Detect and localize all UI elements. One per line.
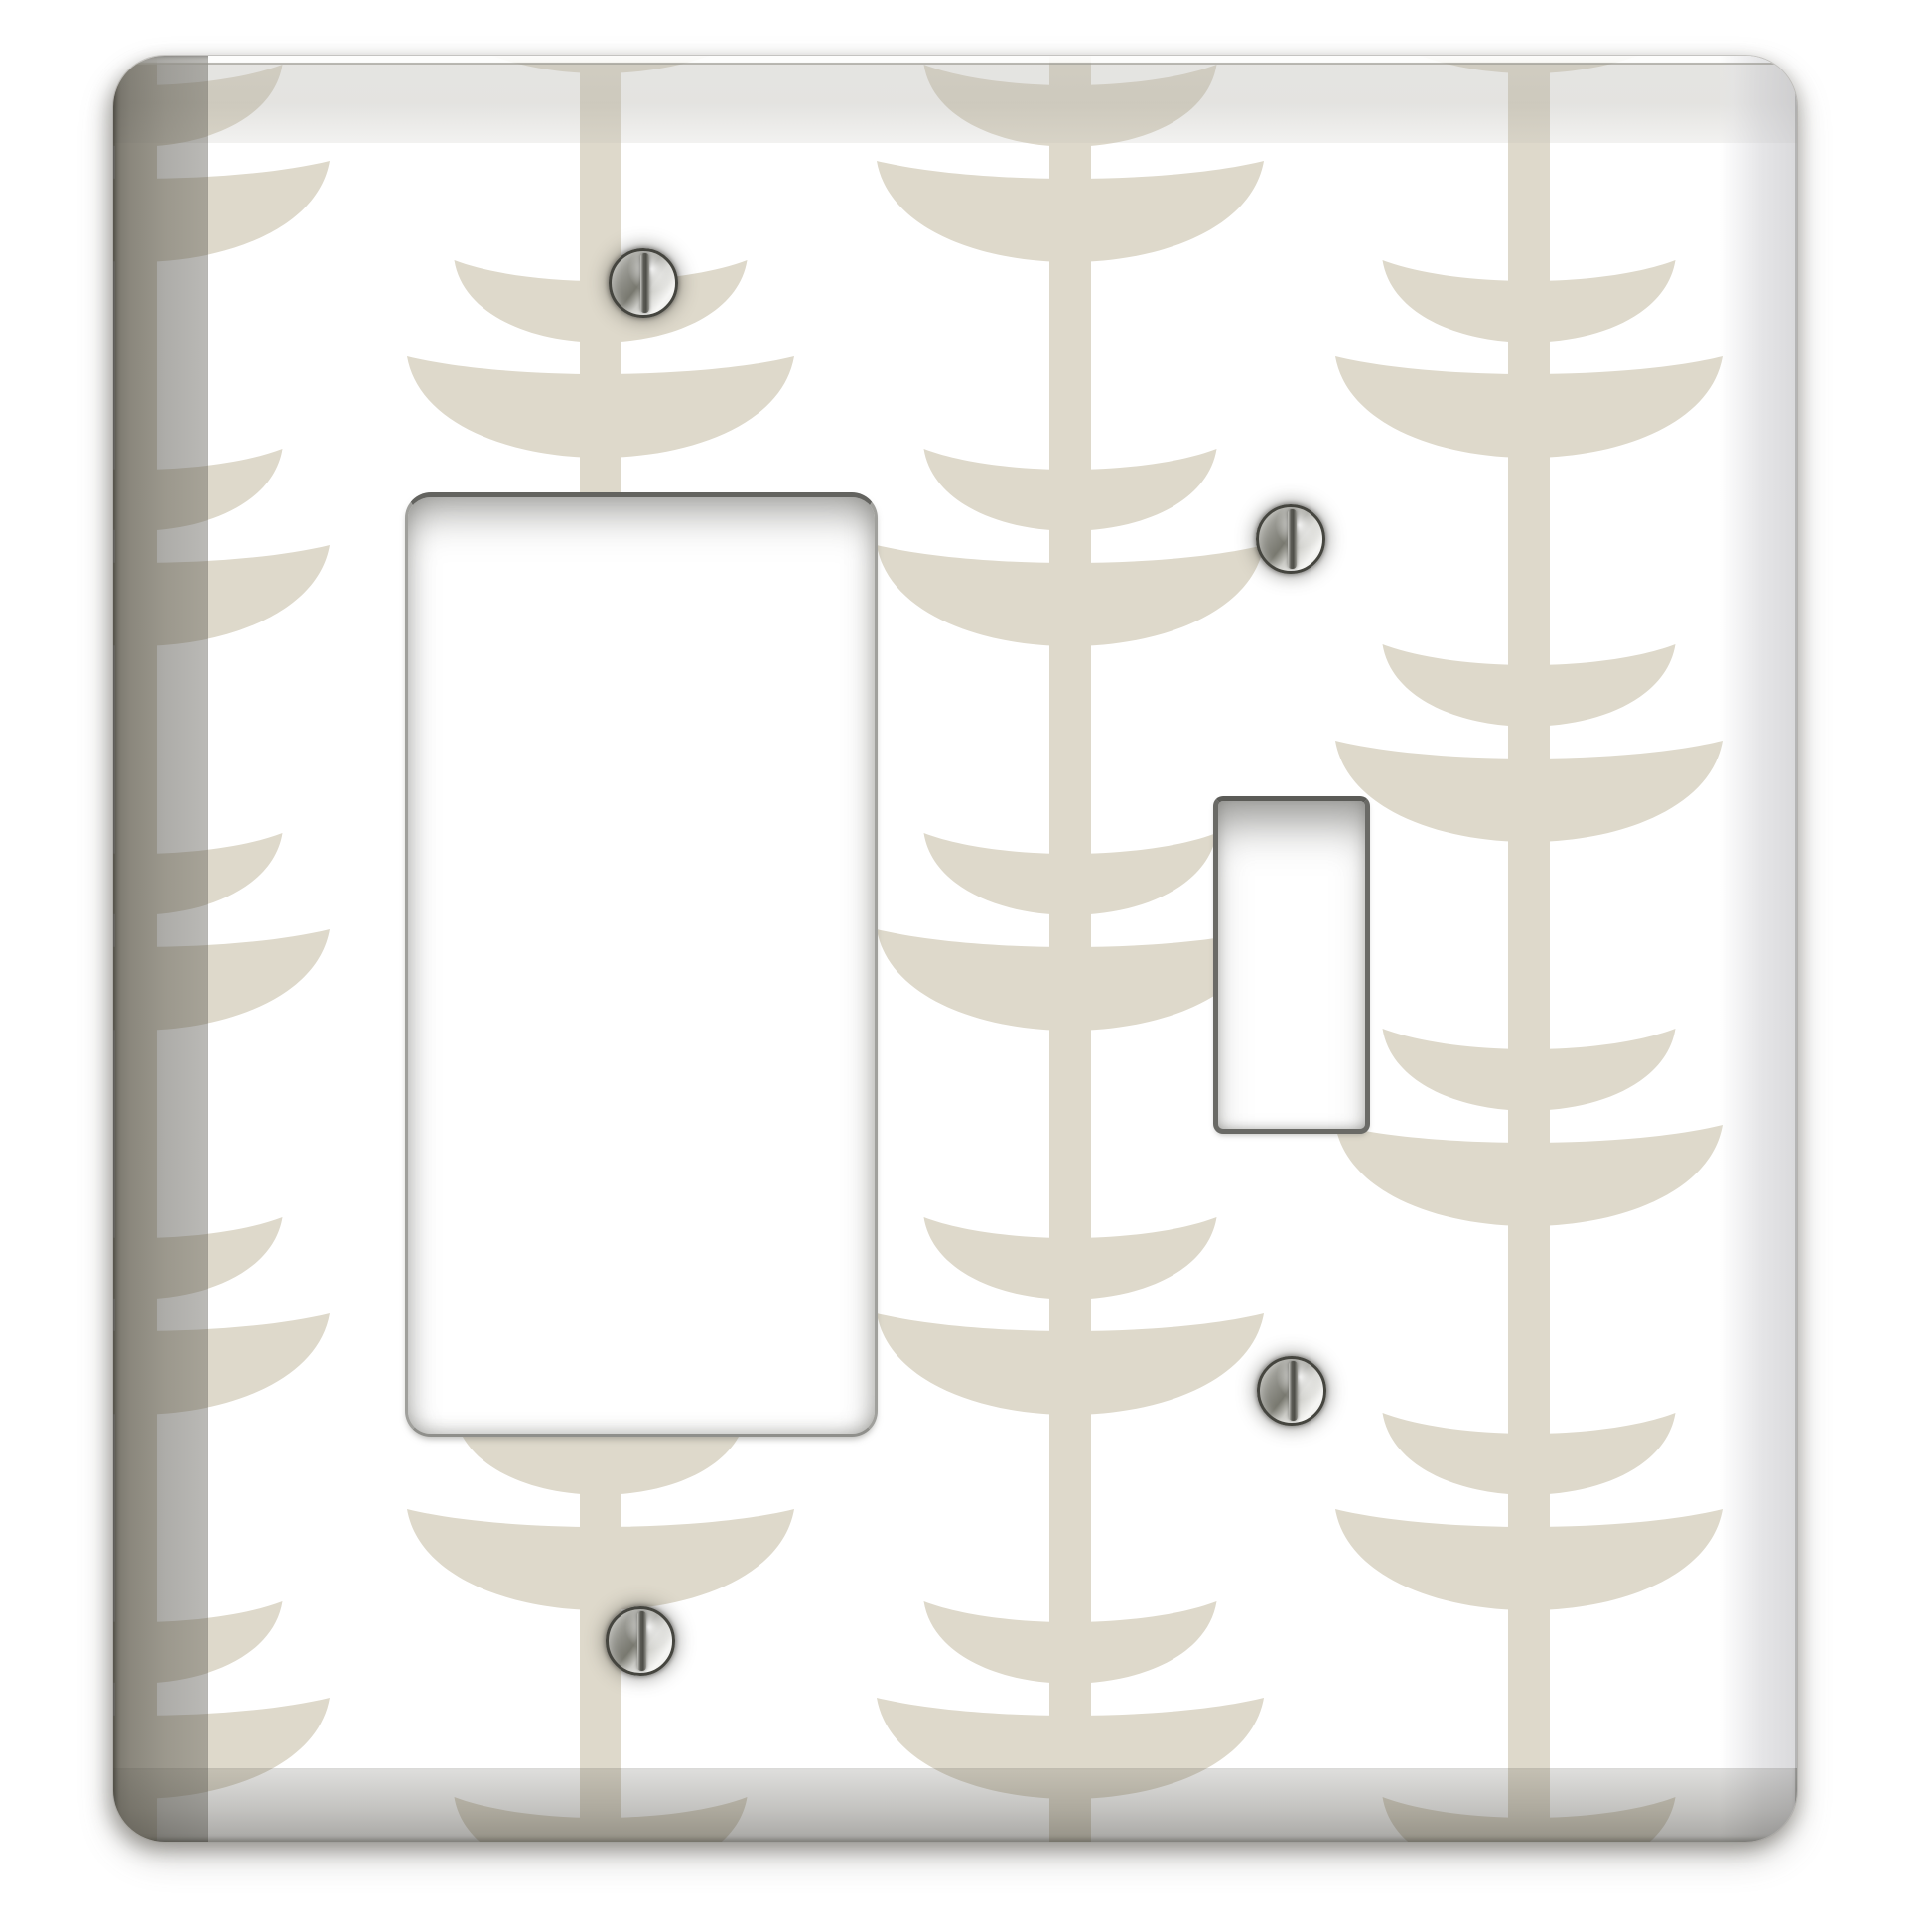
mounting-screw <box>609 248 678 318</box>
mounting-screw <box>1257 1356 1326 1426</box>
leaf-pattern-layer <box>113 56 1797 1842</box>
mounting-screw <box>606 1606 675 1676</box>
screw-slot <box>1288 509 1297 569</box>
screw-slot <box>640 253 649 313</box>
mounting-screw <box>1256 504 1325 574</box>
product-photo-wallplate <box>0 0 1932 1932</box>
wallplate <box>113 56 1797 1842</box>
screw-slot <box>637 1611 646 1671</box>
toggle-opening <box>1213 796 1370 1134</box>
screw-slot <box>1289 1361 1298 1421</box>
rocker-opening <box>405 492 878 1437</box>
